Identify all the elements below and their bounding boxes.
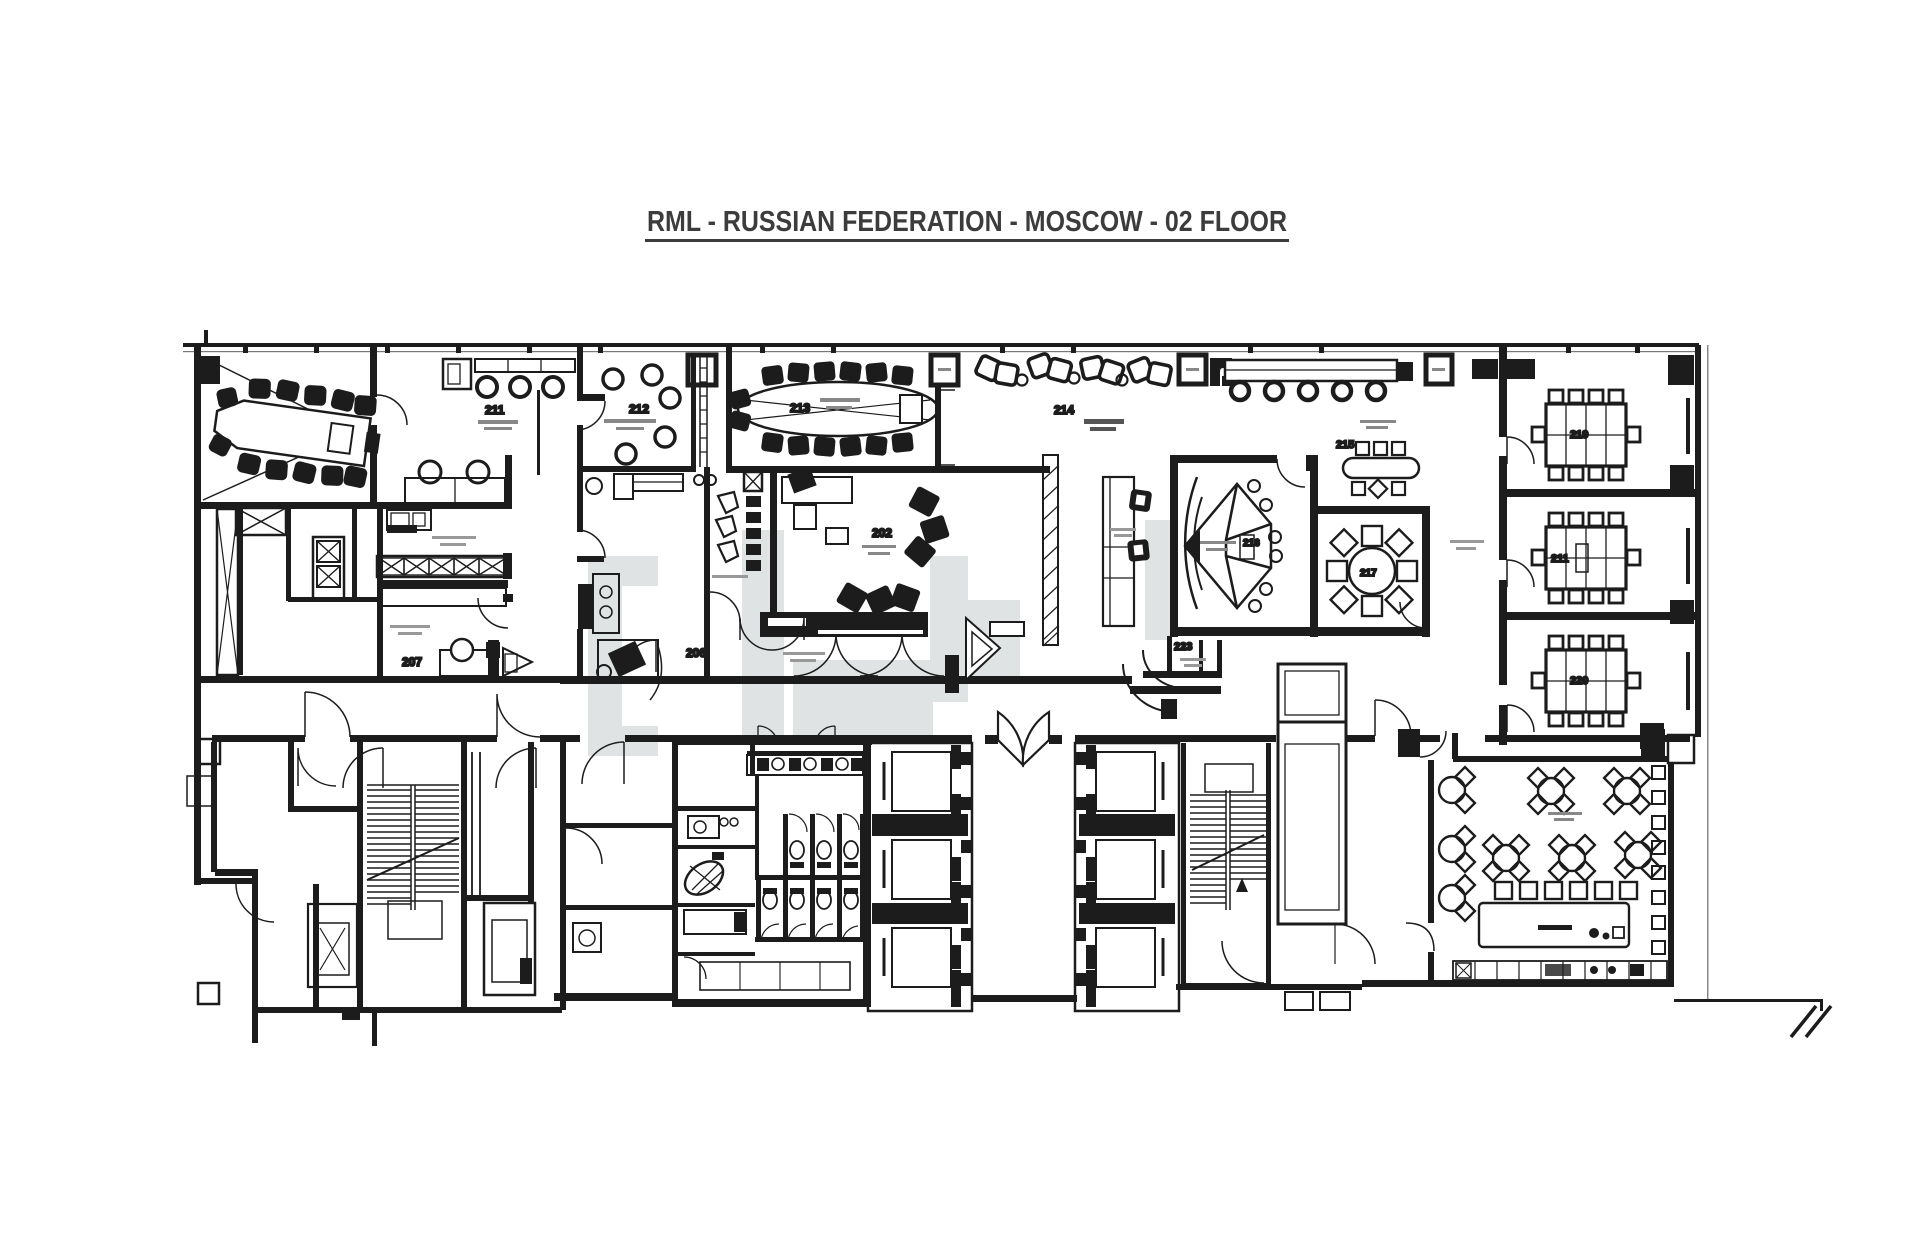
svg-text:207: 207 xyxy=(402,655,422,669)
svg-text:216: 216 xyxy=(1243,538,1260,549)
svg-text:220: 220 xyxy=(1570,675,1588,687)
svg-text:219: 219 xyxy=(1570,429,1588,441)
svg-text:202: 202 xyxy=(872,526,892,540)
svg-text:217: 217 xyxy=(1360,568,1377,579)
svg-text:214: 214 xyxy=(1054,403,1074,417)
svg-text:215: 215 xyxy=(1336,439,1354,451)
svg-text:213: 213 xyxy=(790,401,810,415)
svg-text:211: 211 xyxy=(485,403,505,417)
svg-text:223: 223 xyxy=(1174,641,1192,653)
svg-text:206: 206 xyxy=(686,646,706,660)
svg-text:212: 212 xyxy=(629,402,649,416)
svg-text:211: 211 xyxy=(1551,553,1569,565)
svg-text:RML - RUSSIAN FEDERATION - MOS: RML - RUSSIAN FEDERATION - MOSCOW - 02 F… xyxy=(647,206,1287,238)
